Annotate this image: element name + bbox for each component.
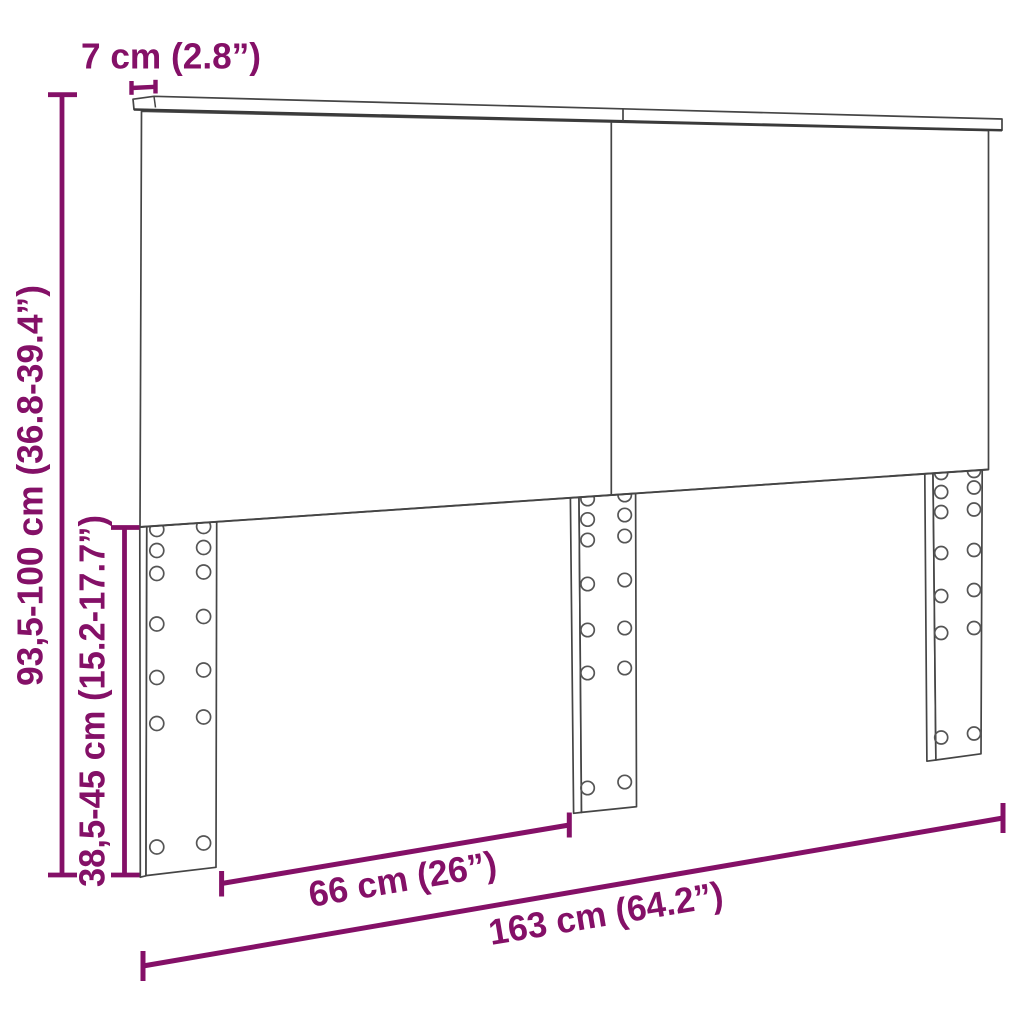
svg-text:7 cm (2.8”): 7 cm (2.8”) (81, 36, 261, 77)
svg-text:38,5-45 cm (15.2-17.7”): 38,5-45 cm (15.2-17.7”) (72, 515, 113, 887)
svg-text:93,5-100 cm (36.8-39.4”): 93,5-100 cm (36.8-39.4”) (10, 285, 51, 686)
